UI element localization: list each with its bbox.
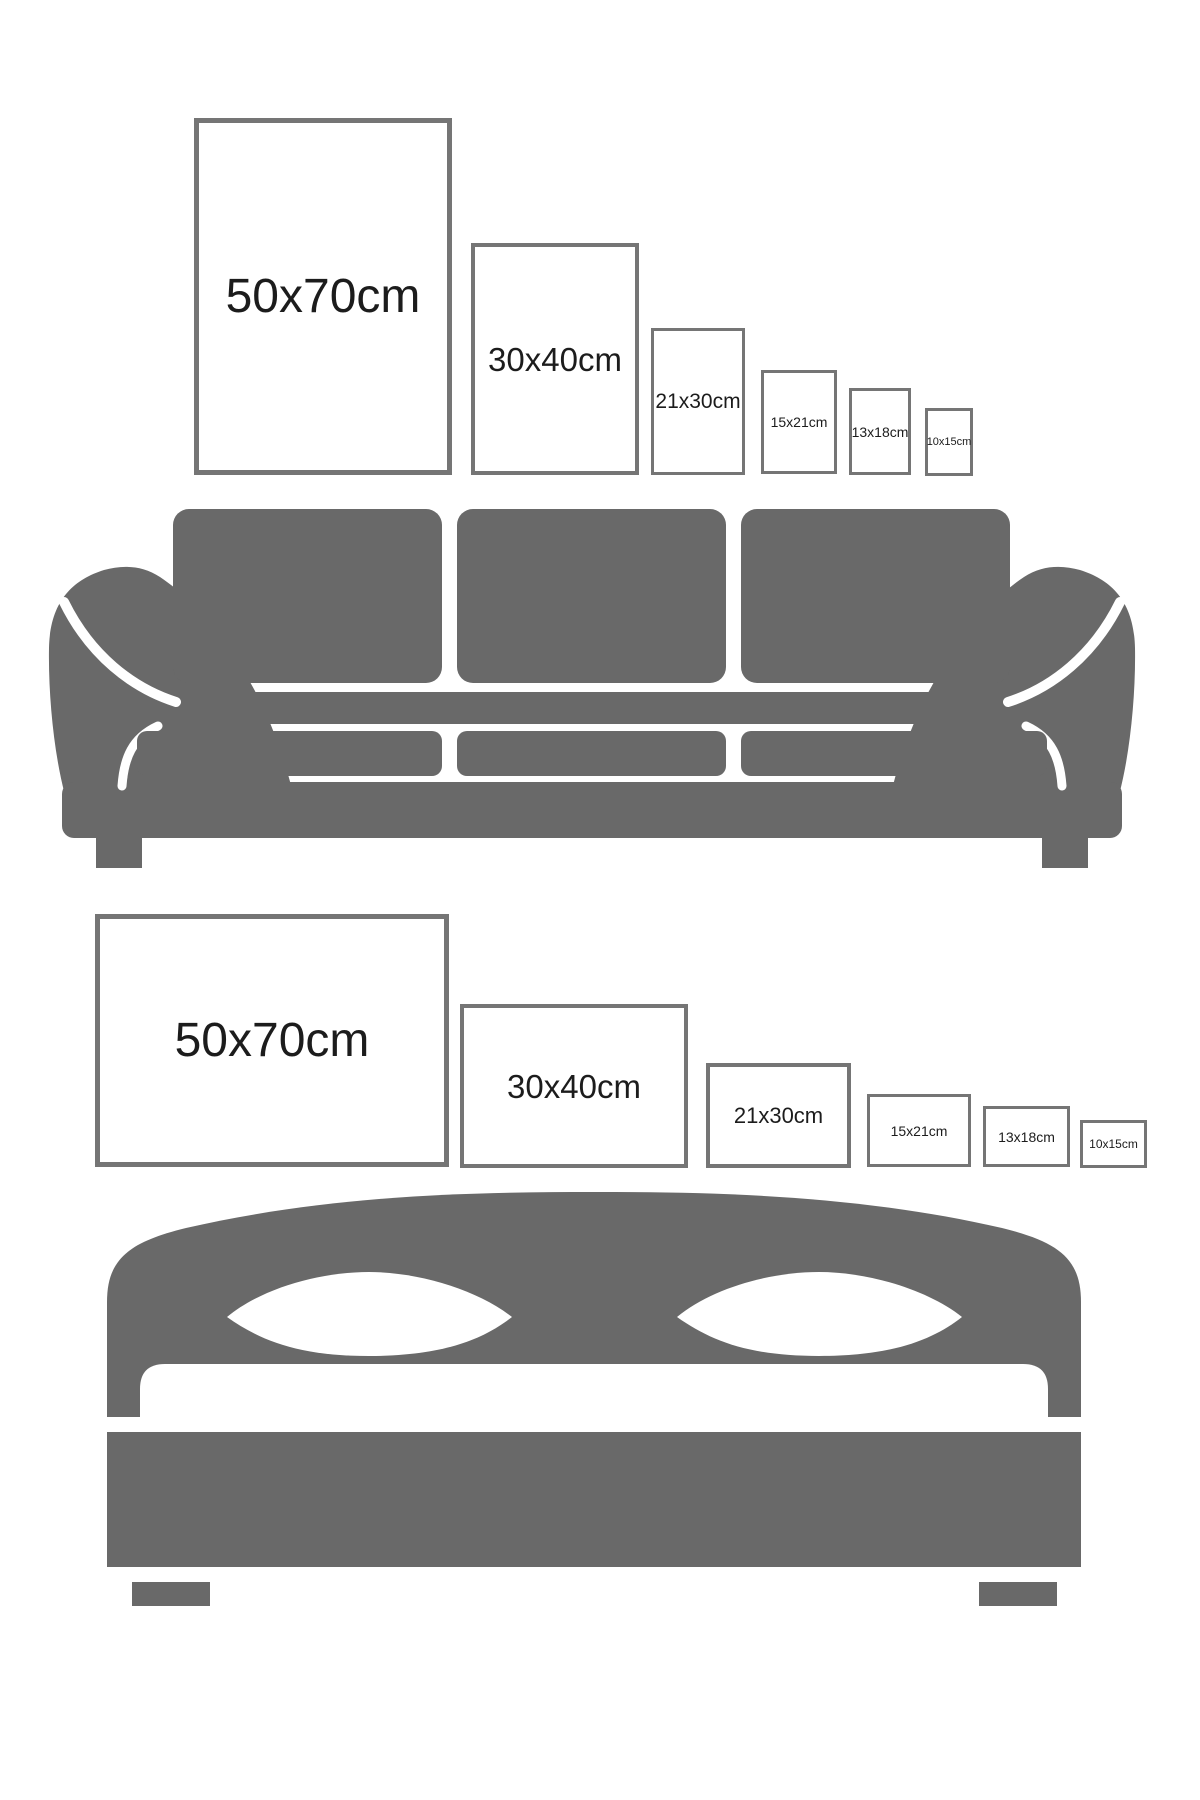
bed-base <box>107 1432 1081 1567</box>
sofa-back-cushion <box>457 509 726 683</box>
sofa-illustration <box>49 509 1135 868</box>
frame-size-label: 13x18cm <box>852 425 909 439</box>
sofa-base <box>62 782 1122 838</box>
frame-size-label: 10x15cm <box>927 437 972 448</box>
frame-portrait-15x21: 15x21cm <box>761 370 837 474</box>
frame-size-label: 30x40cm <box>507 1070 641 1103</box>
bed-right-foot <box>979 1582 1057 1606</box>
frame-landscape-13x18: 13x18cm <box>983 1106 1070 1167</box>
frame-landscape-15x21: 15x21cm <box>867 1094 971 1167</box>
poster-size-guide: 50x70cm 30x40cm 21x30cm 15x21cm 13x18cm … <box>0 0 1200 1800</box>
frame-size-label: 13x18cm <box>998 1130 1055 1144</box>
frame-portrait-21x30: 21x30cm <box>651 328 745 475</box>
bed-left-foot <box>132 1582 210 1606</box>
frame-size-label: 21x30cm <box>734 1105 823 1127</box>
frame-portrait-13x18: 13x18cm <box>849 388 911 475</box>
frame-size-label: 50x70cm <box>226 273 421 321</box>
frame-portrait-30x40: 30x40cm <box>471 243 639 475</box>
sofa-seat-cushion <box>457 731 726 776</box>
frame-size-label: 21x30cm <box>655 391 740 412</box>
frame-landscape-10x15: 10x15cm <box>1080 1120 1147 1168</box>
sofa-left-leg <box>96 836 142 868</box>
frame-portrait-10x15: 10x15cm <box>925 408 973 476</box>
frame-landscape-50x70: 50x70cm <box>95 914 449 1167</box>
sofa-seat-cushion <box>137 731 442 776</box>
frame-size-label: 50x70cm <box>175 1017 370 1065</box>
sofa-seat-deck <box>150 692 1034 724</box>
sofa-back-cushion <box>741 509 1010 683</box>
sofa-right-leg <box>1042 836 1088 868</box>
frame-landscape-30x40: 30x40cm <box>460 1004 688 1168</box>
frame-size-label: 10x15cm <box>1089 1138 1138 1150</box>
bed-deck-gap <box>140 1364 1048 1434</box>
sofa-seat-cushion <box>741 731 1047 776</box>
frame-size-label: 15x21cm <box>891 1124 948 1138</box>
frame-size-label: 15x21cm <box>771 415 828 429</box>
frame-size-label: 30x40cm <box>488 343 622 376</box>
sofa-back-cushion <box>173 509 442 683</box>
frame-portrait-50x70: 50x70cm <box>194 118 452 475</box>
bed-illustration <box>107 1192 1081 1606</box>
frame-landscape-21x30: 21x30cm <box>706 1063 851 1168</box>
